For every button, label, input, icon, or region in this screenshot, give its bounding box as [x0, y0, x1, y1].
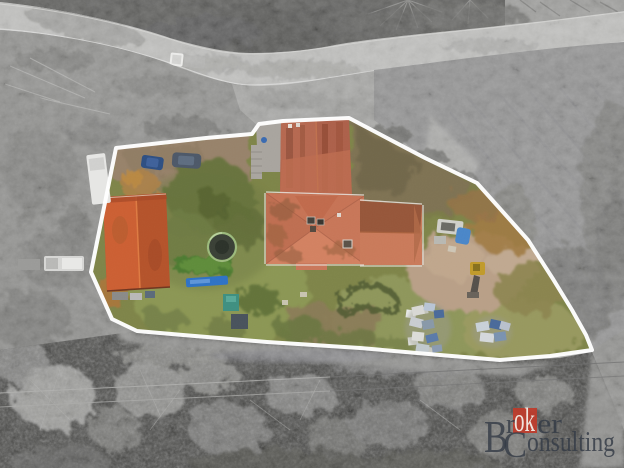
- svg-text:onsulting: onsulting: [527, 426, 615, 458]
- svg-text:C: C: [503, 425, 527, 466]
